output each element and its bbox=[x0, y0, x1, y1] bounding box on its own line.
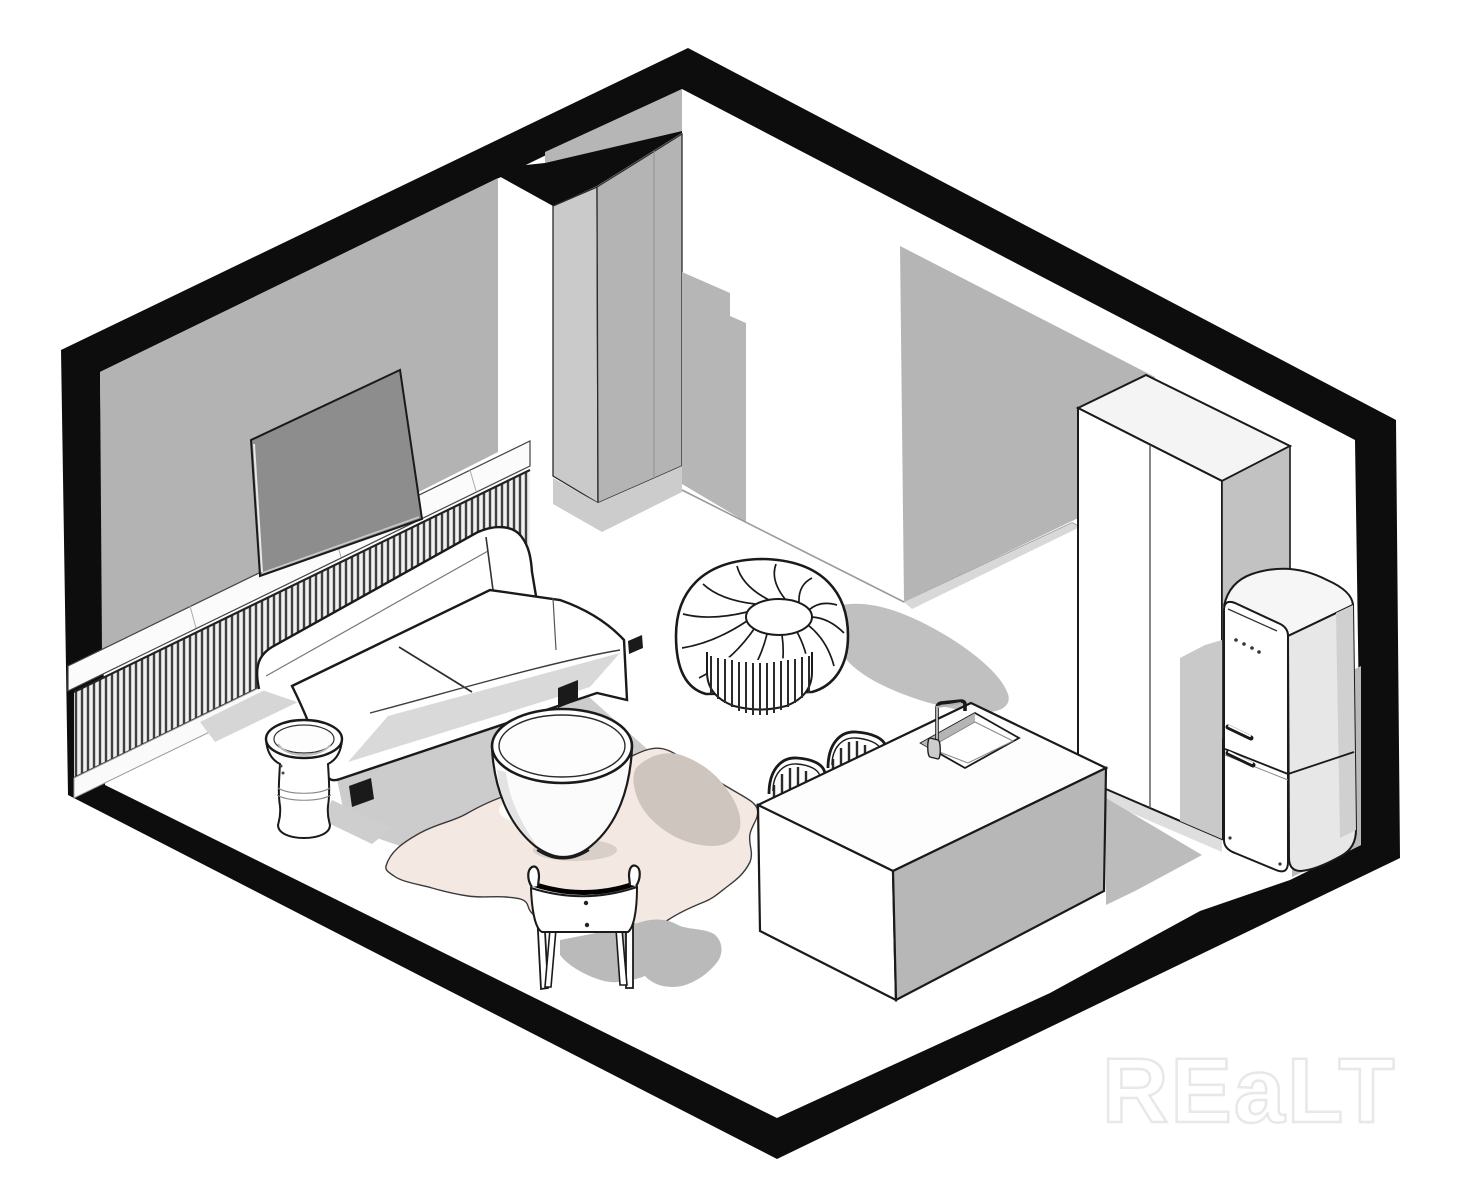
svg-text:REaLT: REaLT bbox=[1102, 1040, 1397, 1142]
